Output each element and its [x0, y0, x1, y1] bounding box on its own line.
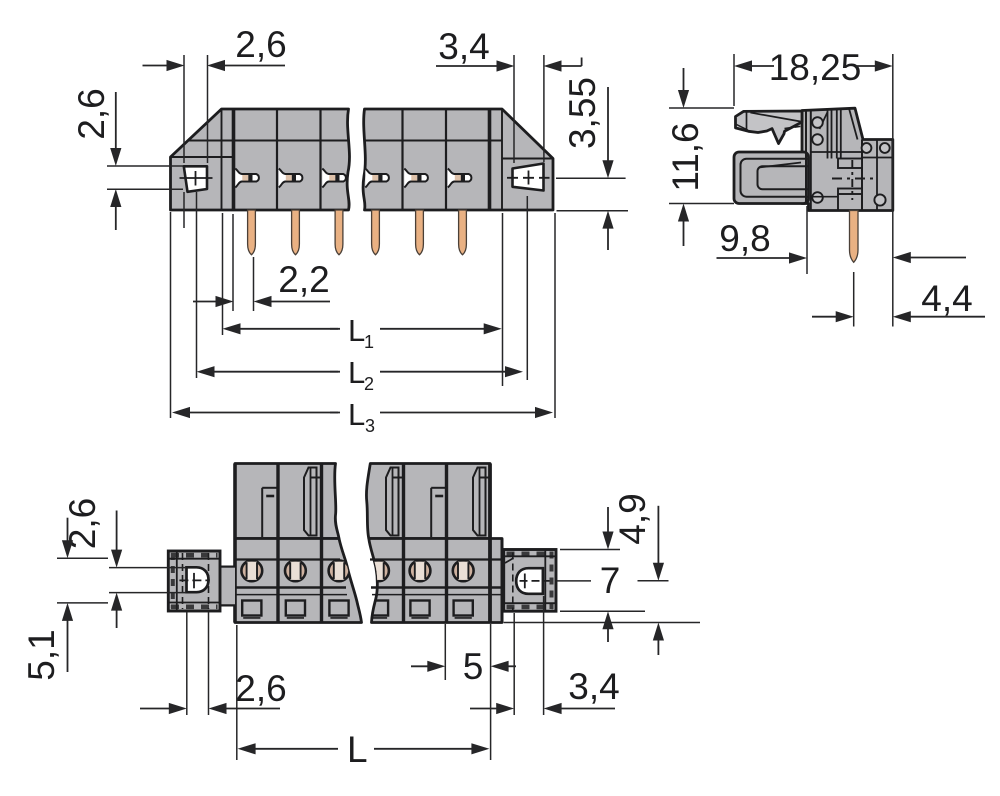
svg-text:3,55: 3,55 — [562, 77, 603, 149]
svg-text:2,6: 2,6 — [71, 88, 112, 139]
svg-text:11,6: 11,6 — [665, 122, 706, 191]
svg-text:7: 7 — [600, 560, 621, 601]
svg-text:18,25: 18,25 — [769, 47, 862, 88]
svg-text:9,8: 9,8 — [719, 218, 770, 259]
svg-text:5,1: 5,1 — [21, 629, 62, 680]
svg-text:L: L — [348, 397, 365, 432]
svg-text:3,4: 3,4 — [438, 26, 489, 67]
svg-text:5: 5 — [463, 646, 484, 687]
svg-text:2,6: 2,6 — [235, 668, 286, 709]
svg-text:2,6: 2,6 — [235, 24, 286, 65]
svg-text:2,2: 2,2 — [278, 259, 329, 300]
svg-text:L: L — [348, 313, 365, 348]
svg-text:4,9: 4,9 — [612, 493, 653, 544]
svg-text:2: 2 — [364, 374, 374, 394]
svg-text:3: 3 — [365, 416, 375, 436]
svg-text:4,4: 4,4 — [921, 278, 972, 319]
svg-text:3,4: 3,4 — [568, 666, 619, 707]
svg-text:L: L — [348, 355, 365, 390]
svg-text:L: L — [347, 729, 368, 770]
svg-text:1: 1 — [364, 332, 374, 352]
